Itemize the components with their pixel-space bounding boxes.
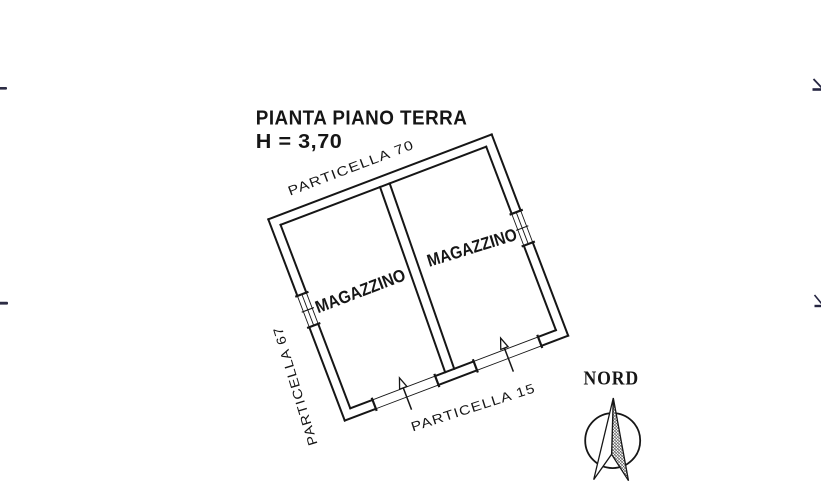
svg-text:PIANTA PIANO TERRA: PIANTA PIANO TERRA <box>256 107 467 129</box>
svg-text:H = 3,70: H = 3,70 <box>256 131 342 153</box>
svg-text:NORD: NORD <box>584 368 640 390</box>
